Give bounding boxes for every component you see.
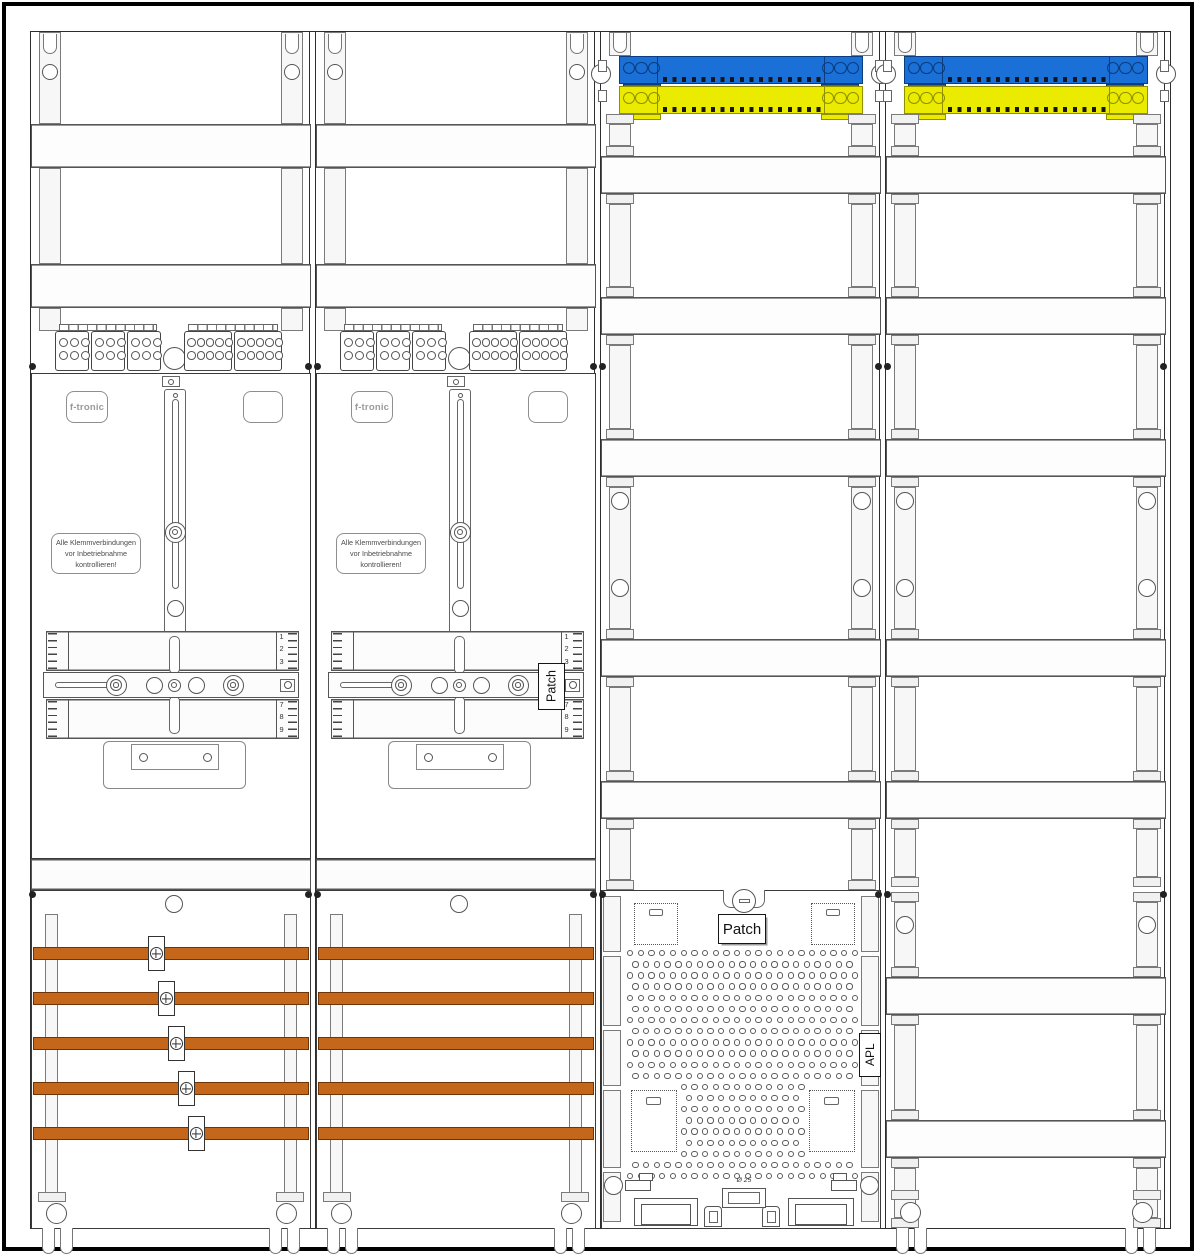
meter-adjust-slot xyxy=(172,399,179,589)
perforation xyxy=(691,1039,697,1045)
perforation xyxy=(761,1140,767,1146)
support-rail xyxy=(851,124,873,146)
busbar-clamp-screw xyxy=(190,1127,203,1140)
perforation xyxy=(691,950,697,956)
rail-end-cap xyxy=(848,477,876,487)
perforation xyxy=(755,1017,761,1023)
perforation xyxy=(777,1128,783,1134)
frame-slot xyxy=(646,1097,661,1105)
perforation xyxy=(675,983,681,989)
terminal-hole xyxy=(225,351,234,360)
perforation xyxy=(729,1050,735,1056)
knockout-diameter-label: Ø 25 xyxy=(722,1177,766,1187)
perforation xyxy=(782,1140,788,1146)
blank-plate xyxy=(528,391,568,423)
support-rail xyxy=(281,168,303,264)
rail-end-cap xyxy=(891,194,919,204)
perforation xyxy=(723,1017,729,1023)
perforation xyxy=(830,1017,836,1023)
perforation xyxy=(723,950,729,956)
perforation xyxy=(648,972,654,978)
din-rail-band xyxy=(886,297,1166,335)
terminal-hole xyxy=(500,338,509,347)
panel-side-segment xyxy=(861,1090,879,1168)
perforation xyxy=(723,1128,729,1134)
panel-side-segment xyxy=(603,1090,621,1168)
rail-end-cap xyxy=(1133,335,1161,345)
slide-hole xyxy=(188,677,205,694)
perforation xyxy=(745,972,751,978)
perforation xyxy=(798,1017,804,1023)
perforation xyxy=(675,1050,681,1056)
support-rail xyxy=(851,345,873,429)
perforation xyxy=(846,1073,852,1079)
perforation xyxy=(782,1006,788,1012)
slide-end-hole xyxy=(284,681,292,689)
knockout-hole xyxy=(163,347,186,370)
perforation xyxy=(723,1151,729,1157)
ruler-ticks xyxy=(288,633,297,669)
perforation xyxy=(782,961,788,967)
ruler-divider xyxy=(68,631,69,671)
din-rail-band xyxy=(601,439,881,477)
perforation xyxy=(632,1050,638,1056)
rail-end-cap xyxy=(606,819,634,829)
perforation xyxy=(713,1039,719,1045)
perforation xyxy=(755,1084,761,1090)
frame-bolt xyxy=(1160,363,1167,370)
busbar xyxy=(33,947,309,960)
ruler-ticks xyxy=(333,633,342,669)
perforation xyxy=(798,995,804,1001)
perforation xyxy=(793,1117,799,1123)
din-rail-band xyxy=(886,639,1166,677)
perforation xyxy=(745,1039,751,1045)
cable-bracket xyxy=(639,1173,653,1181)
perforation xyxy=(782,1050,788,1056)
busbar xyxy=(33,1127,309,1140)
rail-slot xyxy=(855,33,869,53)
support-rail xyxy=(894,1025,916,1110)
terminal-hole xyxy=(275,338,284,347)
perforation xyxy=(675,1028,681,1034)
terminal-hole xyxy=(532,338,541,347)
perforation xyxy=(804,1050,810,1056)
perforation xyxy=(782,1095,788,1101)
neutral-terminal-bar-screw-row xyxy=(663,77,821,83)
rail-end-cap xyxy=(1133,819,1161,829)
terminal-tab-strip xyxy=(473,324,563,331)
panel-side-segment xyxy=(603,1030,621,1086)
din-rail-band xyxy=(316,124,596,168)
rail-end-cap xyxy=(606,880,634,890)
perforation xyxy=(771,1140,777,1146)
slide-screw xyxy=(230,682,236,688)
perforation xyxy=(745,1128,751,1134)
din-rail-band xyxy=(886,781,1166,819)
din-rail-band xyxy=(886,439,1166,477)
rail-hole xyxy=(896,579,914,597)
perforation xyxy=(814,1162,820,1168)
rail-end-cap xyxy=(891,1015,919,1025)
rail-end-cap xyxy=(606,771,634,781)
rail-end-cap xyxy=(848,114,876,124)
rail-hole xyxy=(896,916,914,934)
busbar xyxy=(318,947,594,960)
compartment-grommet xyxy=(450,895,468,913)
perforation xyxy=(745,1151,751,1157)
perforation xyxy=(777,995,783,1001)
rail-slot xyxy=(914,1228,927,1254)
rail-end-cap xyxy=(891,967,919,977)
neutral-terminal-bar-hole xyxy=(1119,62,1132,75)
ruler-digit: 2 xyxy=(562,644,571,653)
perforation xyxy=(723,995,729,1001)
support-rail xyxy=(851,687,873,771)
perforation xyxy=(798,1084,804,1090)
perforation xyxy=(681,1062,687,1068)
perforation xyxy=(713,995,719,1001)
cable-bracket xyxy=(831,1180,857,1191)
support-rail xyxy=(894,345,916,429)
cable-bracket xyxy=(833,1173,847,1181)
frame-bolt xyxy=(599,363,606,370)
perforation xyxy=(670,972,676,978)
perforation xyxy=(761,1073,767,1079)
frame-bolt xyxy=(305,363,312,370)
perforation xyxy=(830,950,836,956)
din-rail-band xyxy=(601,297,881,335)
perforation xyxy=(681,1039,687,1045)
perforation xyxy=(718,1050,724,1056)
rail-slot xyxy=(554,1228,567,1254)
perforation xyxy=(798,1151,804,1157)
din-rail-band xyxy=(316,264,596,308)
terminal-hole xyxy=(197,338,206,347)
rail-end-cap xyxy=(848,819,876,829)
perforation xyxy=(814,1006,820,1012)
adjust-screw xyxy=(172,529,178,535)
perforation xyxy=(707,1028,713,1034)
patch-panel-label: Patch xyxy=(718,914,766,944)
warning-label: Alle Klemmverbindungen vor Inbetriebnahm… xyxy=(336,533,426,574)
terminal-hole xyxy=(472,351,481,360)
terminal-hole xyxy=(215,351,224,360)
bar-clamp xyxy=(883,90,892,102)
perforation xyxy=(788,1062,794,1068)
perforation xyxy=(723,972,729,978)
rail-end-cap xyxy=(891,819,919,829)
section-joint xyxy=(31,859,311,890)
busbar xyxy=(318,992,594,1005)
frame-slot xyxy=(649,909,663,916)
slide-screw xyxy=(113,682,119,688)
perforation xyxy=(702,1128,708,1134)
terminal-hole xyxy=(482,351,491,360)
perforation xyxy=(627,1039,633,1045)
perforation xyxy=(814,1073,820,1079)
perforation xyxy=(782,1073,788,1079)
perforation xyxy=(836,1006,842,1012)
rail-end-cap xyxy=(606,194,634,204)
support-rail xyxy=(851,829,873,880)
ruler-digit: 9 xyxy=(277,725,286,734)
perforation xyxy=(755,995,761,1001)
rail-end-cap xyxy=(1133,677,1161,687)
rail-end-cap xyxy=(1133,287,1161,297)
perforation xyxy=(782,1117,788,1123)
perforation xyxy=(643,961,649,967)
frame-bolt xyxy=(314,891,321,898)
warning-line: Alle Klemmverbindungen xyxy=(341,537,421,548)
perforation xyxy=(750,1117,756,1123)
rail-end-cap xyxy=(848,287,876,297)
distribution-field-4 xyxy=(885,31,1165,1229)
support-rail xyxy=(609,687,631,771)
perforation xyxy=(809,1039,815,1045)
bottom-hole xyxy=(561,1203,582,1224)
perforation xyxy=(718,1117,724,1123)
perforation xyxy=(718,961,724,967)
perforation xyxy=(761,1117,767,1123)
frame-slot xyxy=(824,1097,839,1105)
wiring-diagram: f-tronic Alle Klemmverbindungen vor Inbe… xyxy=(0,0,1200,1257)
rail-end-cap xyxy=(1133,114,1161,124)
bar-clamp xyxy=(598,60,607,72)
slide-screw xyxy=(515,682,521,688)
perforation xyxy=(723,1084,729,1090)
perforation xyxy=(723,1039,729,1045)
knockout-flange-inner xyxy=(728,1192,760,1204)
support-rail xyxy=(1136,829,1158,877)
perforation xyxy=(632,1073,638,1079)
perforation xyxy=(627,972,633,978)
perforation xyxy=(788,1039,794,1045)
perforation xyxy=(814,961,820,967)
support-rail xyxy=(566,308,588,331)
pe-terminal-bar-screw-row xyxy=(663,107,821,113)
perforation xyxy=(713,1151,719,1157)
perforation xyxy=(836,961,842,967)
adjust-hole xyxy=(458,393,463,398)
rail-end-cap xyxy=(606,477,634,487)
cross-slot xyxy=(454,636,465,674)
cross-slot xyxy=(169,696,180,734)
neutral-terminal-bar-screw-row xyxy=(948,77,1106,83)
perforation xyxy=(771,1050,777,1056)
terminal-hole xyxy=(237,338,246,347)
terminal-hole xyxy=(532,351,541,360)
perforation xyxy=(729,983,735,989)
perforation xyxy=(771,983,777,989)
terminal-hole xyxy=(500,351,509,360)
perforation xyxy=(729,1140,735,1146)
rail-slot xyxy=(269,1228,282,1254)
perforation xyxy=(830,1062,836,1068)
adjust-keyhole xyxy=(452,600,469,617)
frame-bolt xyxy=(875,363,882,370)
rail-end-cap xyxy=(891,1110,919,1120)
rail-slot xyxy=(896,1228,909,1254)
terminal-hole xyxy=(187,338,196,347)
support-rail xyxy=(609,345,631,429)
ruler-ticks xyxy=(333,701,342,737)
rail-end-cap xyxy=(891,1158,919,1168)
warning-label: Alle Klemmverbindungen vor Inbetriebnahm… xyxy=(51,533,141,574)
perforation xyxy=(846,1162,852,1168)
support-rail xyxy=(39,308,61,331)
perforation xyxy=(788,1151,794,1157)
support-rail xyxy=(894,204,916,287)
perforation xyxy=(691,995,697,1001)
terminal-hole xyxy=(522,351,531,360)
support-rail xyxy=(1136,124,1158,146)
perforation xyxy=(852,1039,858,1045)
rail-hole xyxy=(611,492,629,510)
terminal-hole xyxy=(215,338,224,347)
perforation xyxy=(777,972,783,978)
rail-end-cap xyxy=(606,287,634,297)
bottom-hole xyxy=(1132,1202,1153,1223)
terminal-hole xyxy=(237,351,246,360)
perforation xyxy=(729,1073,735,1079)
perforation xyxy=(739,1073,745,1079)
support-rail xyxy=(281,308,303,331)
rail-hole xyxy=(284,64,300,80)
perforation xyxy=(788,1128,794,1134)
cable-clip-slot xyxy=(767,1211,776,1223)
perforation xyxy=(707,1140,713,1146)
support-rail xyxy=(39,168,61,264)
frame-bolt xyxy=(884,891,891,898)
compartment-grommet xyxy=(165,895,183,913)
ruler-digit: 7 xyxy=(277,700,286,709)
frame-bolt xyxy=(314,363,321,370)
perforation xyxy=(846,961,852,967)
rail-slot xyxy=(328,34,342,54)
terminal-hole xyxy=(560,351,569,360)
perforation xyxy=(798,1106,804,1112)
perforation xyxy=(798,972,804,978)
pe-terminal-bar-hole xyxy=(1119,92,1132,105)
perforation xyxy=(729,961,735,967)
busbar-compartment xyxy=(316,890,596,1229)
rail-slot xyxy=(285,34,299,54)
support-rail xyxy=(851,204,873,287)
bottom-hole xyxy=(276,1203,297,1224)
perforation xyxy=(798,1039,804,1045)
perforation xyxy=(771,1162,777,1168)
rail-slot xyxy=(1125,1228,1138,1254)
cable-tray-inner xyxy=(795,1204,847,1225)
terminal-hole xyxy=(265,338,274,347)
perforation xyxy=(697,1073,703,1079)
perforation xyxy=(734,1039,740,1045)
perforation xyxy=(771,961,777,967)
slide-hole xyxy=(431,677,448,694)
perforation xyxy=(713,972,719,978)
perforation xyxy=(681,1084,687,1090)
perforation xyxy=(654,961,660,967)
panel-side-segment xyxy=(861,956,879,1026)
slide-hole xyxy=(146,677,163,694)
perforation xyxy=(755,972,761,978)
terminal-hole xyxy=(197,351,206,360)
terminal-hole xyxy=(550,351,559,360)
perforation xyxy=(691,1128,697,1134)
perforation xyxy=(771,1117,777,1123)
adjust-keyhole xyxy=(167,600,184,617)
meter-adjust-slot xyxy=(457,399,464,589)
slide-end-hole xyxy=(569,681,577,689)
perforation xyxy=(798,950,804,956)
blank-plate xyxy=(243,391,283,423)
perforation xyxy=(755,1151,761,1157)
perforation xyxy=(793,983,799,989)
perforation xyxy=(798,1128,804,1134)
perforation xyxy=(755,1039,761,1045)
rail-end-cap xyxy=(1133,194,1161,204)
perforation xyxy=(686,983,692,989)
rail-hole xyxy=(611,579,629,597)
perforation xyxy=(654,1073,660,1079)
busbar xyxy=(33,1082,309,1095)
perforation xyxy=(836,983,842,989)
bar-clamp xyxy=(598,90,607,102)
rail-end-cap xyxy=(848,335,876,345)
rail-hole xyxy=(853,579,871,597)
perforation xyxy=(788,972,794,978)
perforation xyxy=(739,1006,745,1012)
bottom-hole xyxy=(331,1203,352,1224)
grommet-slot xyxy=(739,899,750,903)
rail-hole xyxy=(853,492,871,510)
adjust-hole xyxy=(173,393,178,398)
perforation xyxy=(755,1062,761,1068)
rail-end-cap xyxy=(1133,1158,1161,1168)
din-rail-band xyxy=(601,639,881,677)
rail-end-cap xyxy=(848,880,876,890)
perforation xyxy=(841,1039,847,1045)
perforation xyxy=(707,961,713,967)
ruler-ticks xyxy=(288,701,297,737)
perforation xyxy=(686,1050,692,1056)
cross-slot xyxy=(454,696,465,734)
bracket-hole xyxy=(488,753,497,762)
perforation xyxy=(852,972,858,978)
perforation xyxy=(702,972,708,978)
pe-terminal-bar-hole xyxy=(834,92,847,105)
rail-end-cap xyxy=(891,335,919,345)
perforation xyxy=(846,1006,852,1012)
support-rail xyxy=(566,168,588,264)
perforation xyxy=(697,1050,703,1056)
perforation xyxy=(836,1073,842,1079)
perforation xyxy=(632,1006,638,1012)
support-rail xyxy=(609,204,631,287)
support-rail xyxy=(1136,1025,1158,1110)
panel-top-tab-hole xyxy=(168,379,174,385)
perforation xyxy=(664,1162,670,1168)
perforation xyxy=(804,983,810,989)
ruler-digit: 8 xyxy=(277,712,286,721)
perforation xyxy=(675,1162,681,1168)
perforation xyxy=(686,1117,692,1123)
perforation xyxy=(836,1050,842,1056)
perforation xyxy=(755,1128,761,1134)
bottom-hole xyxy=(900,1202,921,1223)
support-rail xyxy=(894,902,916,967)
